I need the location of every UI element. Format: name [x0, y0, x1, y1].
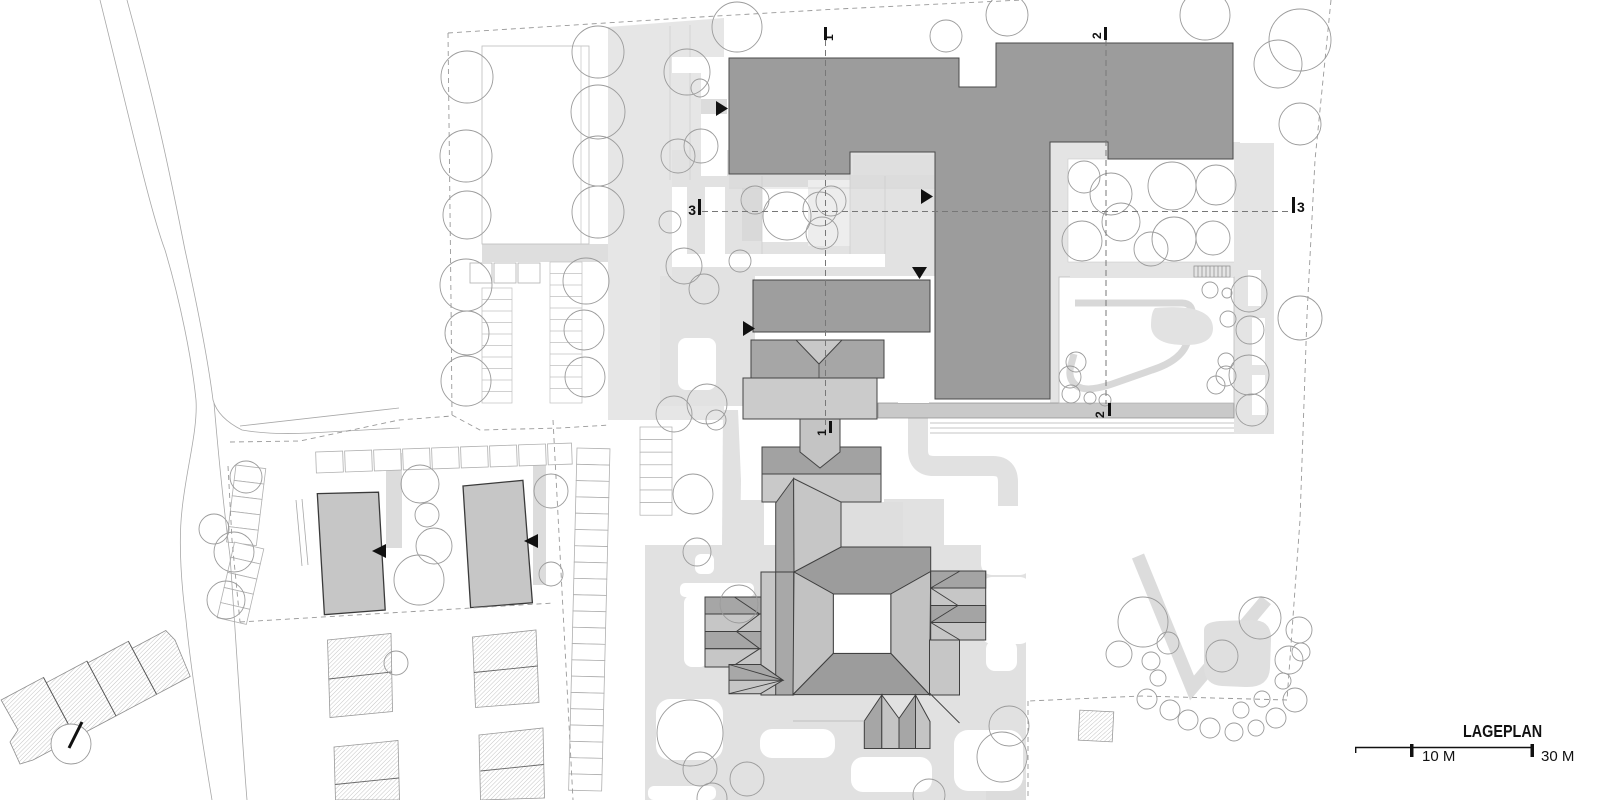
svg-text:10 M: 10 M	[1422, 748, 1455, 765]
svg-text:LAGEPLAN: LAGEPLAN	[1463, 722, 1542, 742]
svg-text:3: 3	[1297, 199, 1305, 215]
svg-text:30 M: 30 M	[1541, 748, 1574, 765]
svg-text:1: 1	[815, 429, 829, 436]
svg-text:3: 3	[688, 202, 696, 218]
svg-text:2: 2	[1090, 32, 1104, 39]
svg-text:1: 1	[822, 34, 836, 41]
svg-text:2: 2	[1093, 411, 1107, 418]
